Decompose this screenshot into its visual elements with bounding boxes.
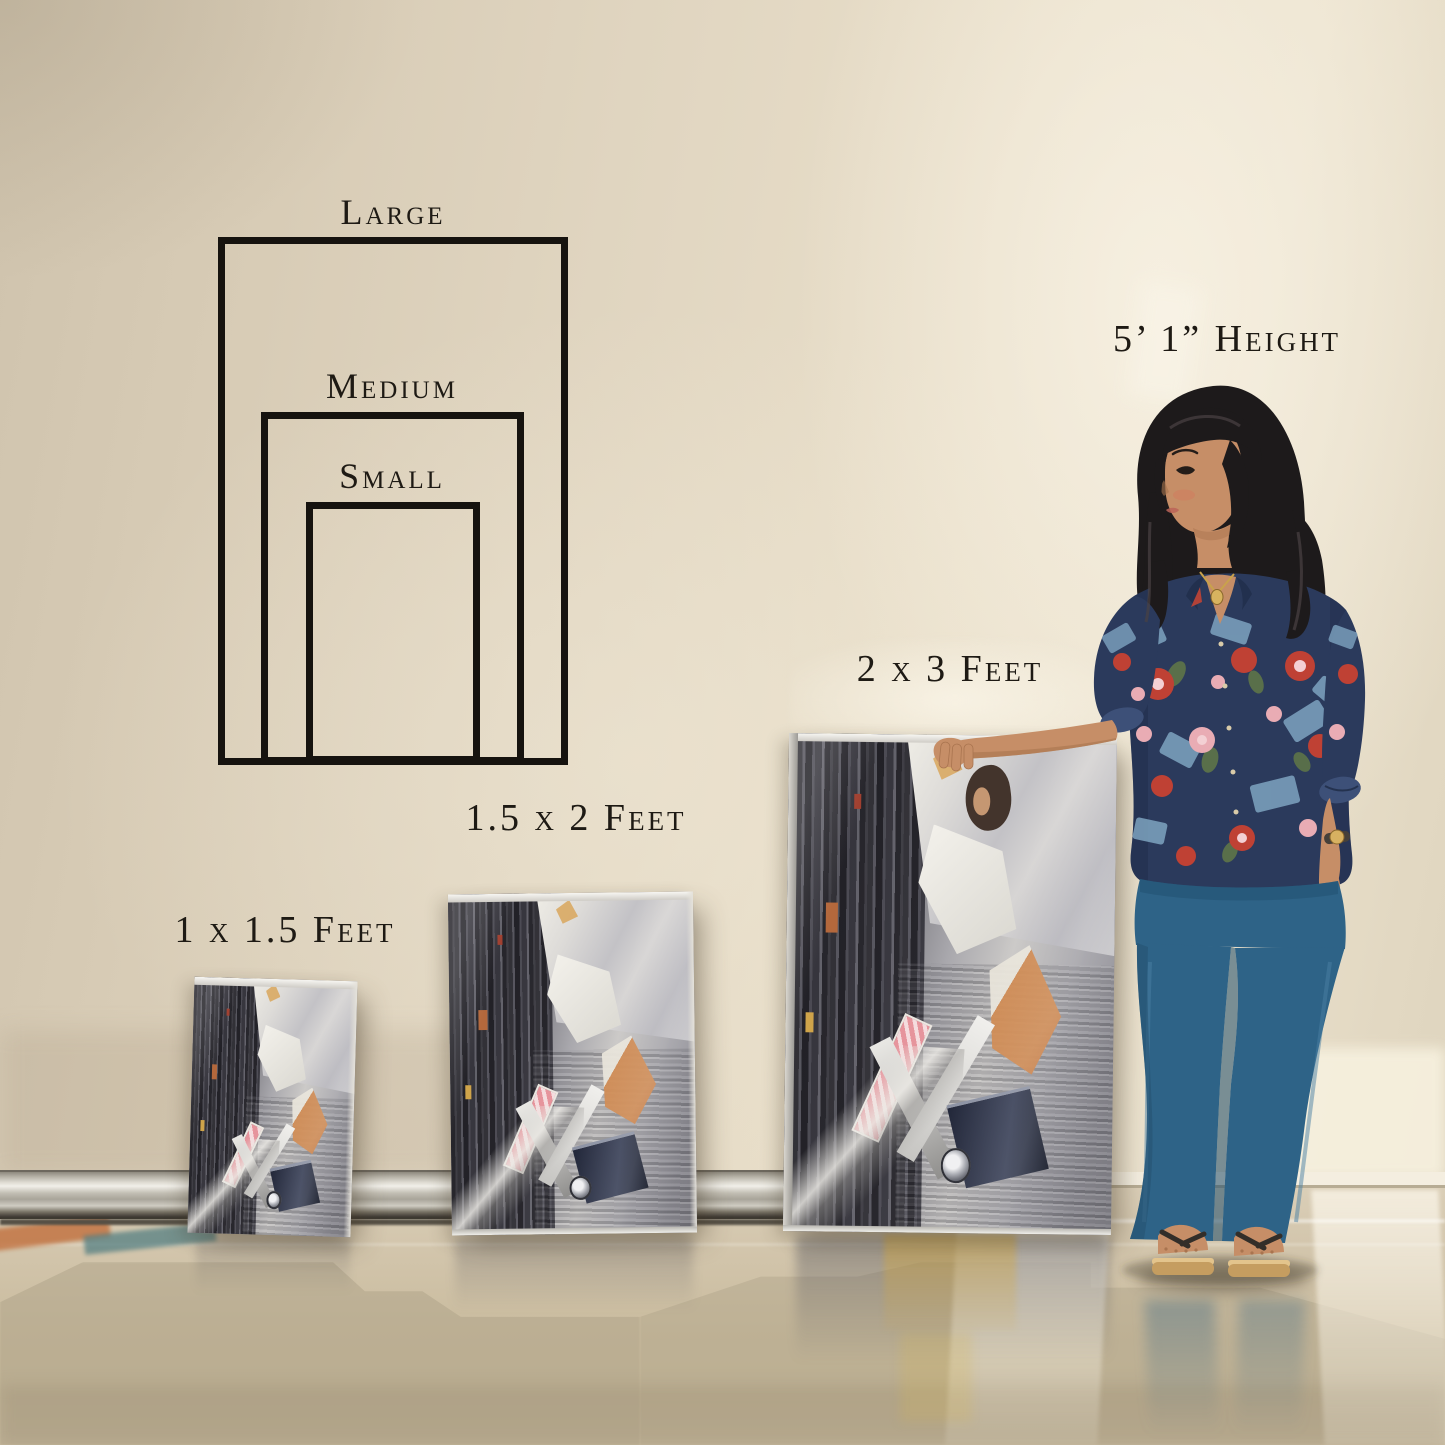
floor-reflection bbox=[0, 1385, 1445, 1445]
canvas-print-small bbox=[187, 977, 357, 1237]
canvas-reflection bbox=[455, 1238, 693, 1310]
metal-baseboard bbox=[0, 1170, 900, 1219]
artwork-gloss bbox=[187, 977, 357, 1237]
woman-figure bbox=[900, 382, 1422, 1297]
size-rectangle-small bbox=[306, 502, 480, 763]
woman-reflection bbox=[1235, 1300, 1306, 1435]
canvas-label-small: 1 x 1.5 Feet bbox=[174, 911, 395, 949]
size-label-large: Large bbox=[340, 194, 445, 230]
canvas-label-medium: 1.5 x 2 Feet bbox=[465, 799, 686, 837]
woman-reflection bbox=[1145, 1300, 1220, 1435]
woman-hand-on-canvas bbox=[939, 742, 973, 772]
wristwatch-face bbox=[1330, 830, 1344, 844]
woman-jeans bbox=[1130, 879, 1346, 1243]
abstract-artwork bbox=[187, 977, 357, 1237]
baseboard-shadow bbox=[0, 1219, 900, 1225]
size-guide-image: Large Medium Small 5’ 1” Height 2 x 3 Fe… bbox=[0, 0, 1445, 1445]
artwork-gloss bbox=[448, 892, 697, 1236]
floor-yellow-reflection bbox=[900, 1332, 972, 1422]
height-label: 5’ 1” Height bbox=[1113, 320, 1341, 358]
woman-right-arm bbox=[934, 596, 1160, 771]
size-label-medium: Medium bbox=[326, 368, 458, 404]
size-label-small: Small bbox=[339, 458, 445, 494]
canvas-reflection bbox=[196, 1238, 350, 1293]
canvas-print-medium bbox=[448, 892, 697, 1236]
abstract-artwork bbox=[448, 892, 697, 1236]
